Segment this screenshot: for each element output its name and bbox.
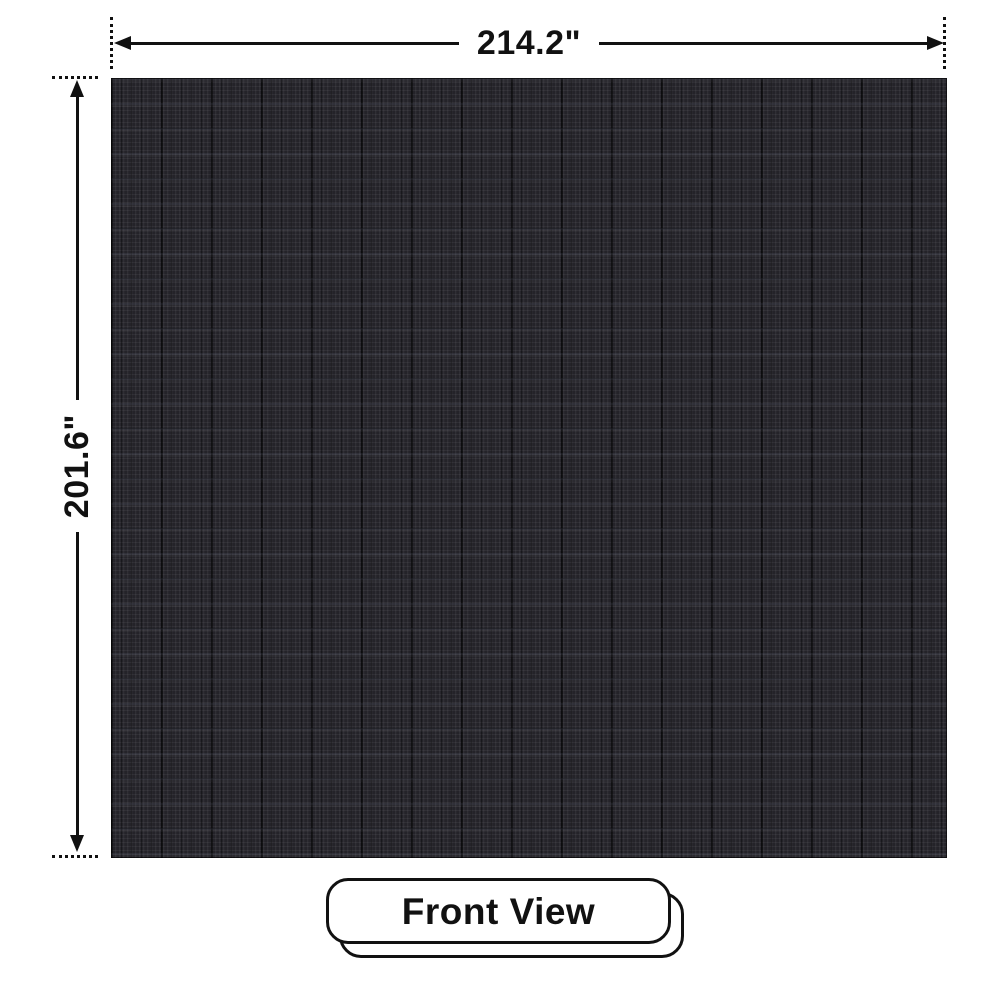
width-dimension: 214.2" [114,23,944,63]
extension-line-top-left [110,17,113,69]
arrowhead-right-icon [927,36,944,50]
dimension-line-segment [599,42,927,45]
extension-line-left-bottom [52,855,98,858]
dimension-line-segment [76,532,79,835]
view-badge-label: Front View [402,893,595,930]
arrowhead-left-icon [114,36,131,50]
view-badge: Front View [326,878,671,944]
arrowhead-up-icon [70,80,84,97]
height-dimension: 201.6" [56,80,98,852]
height-dimension-label: 201.6" [60,414,94,518]
extension-line-left-top [52,76,98,79]
arrowhead-down-icon [70,835,84,852]
dimension-line-segment [131,42,459,45]
view-badge-front-card: Front View [326,878,671,944]
dimension-diagram: 214.2" 201.6" Front View [0,0,1000,1000]
dimension-line-segment [76,97,79,400]
led-panel-front-face [111,78,947,858]
width-dimension-label: 214.2" [477,26,581,60]
